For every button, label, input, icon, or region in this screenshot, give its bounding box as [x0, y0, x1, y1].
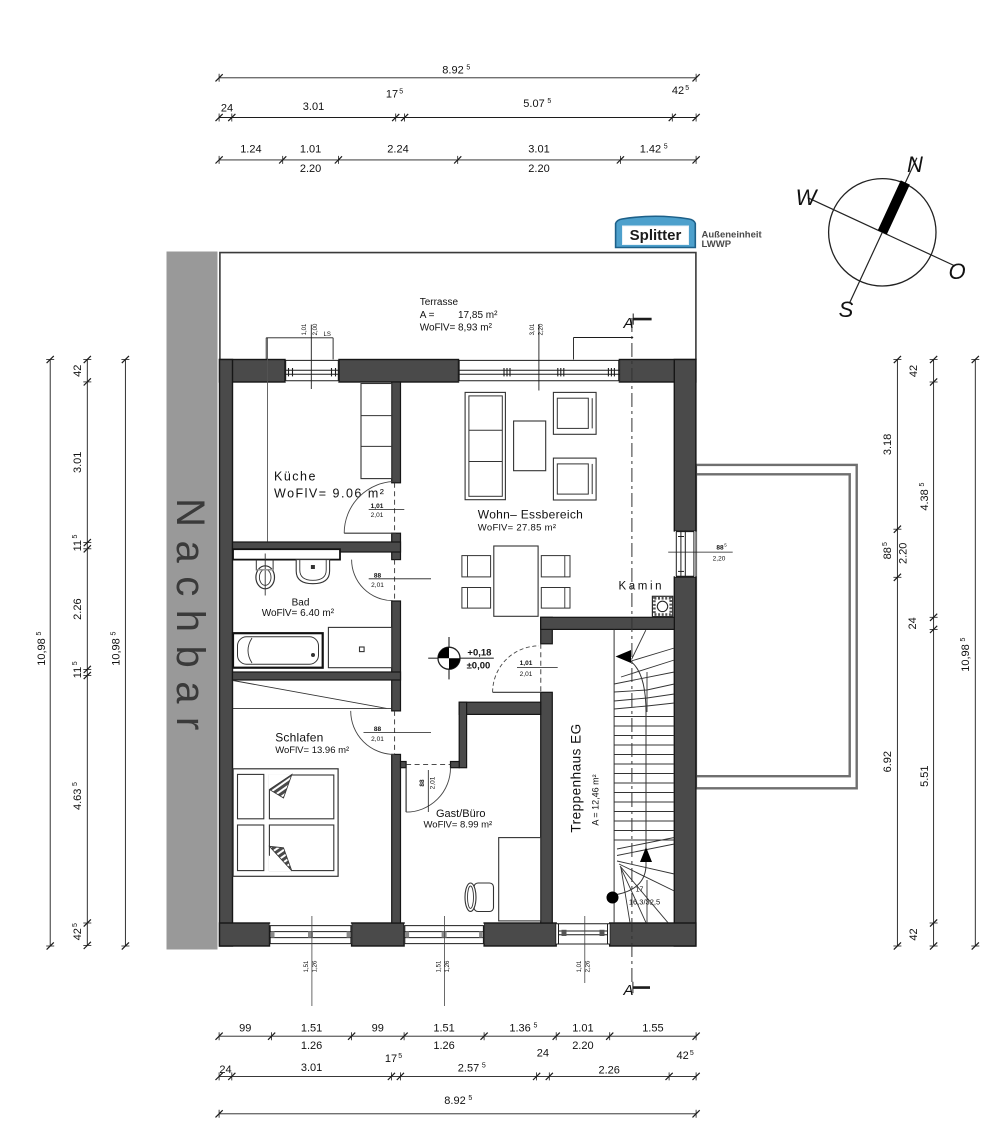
- svg-text:4.63: 4.63: [72, 789, 84, 810]
- svg-text:Treppenhaus EG: Treppenhaus EG: [569, 723, 584, 832]
- svg-text:1,26: 1,26: [313, 960, 319, 972]
- svg-text:17: 17: [385, 1053, 397, 1065]
- svg-text:1.55: 1.55: [642, 1023, 663, 1035]
- svg-text:5: 5: [533, 1023, 537, 1030]
- svg-text:2,01: 2,01: [371, 582, 384, 589]
- svg-text:1.36: 1.36: [509, 1023, 530, 1035]
- svg-text:24: 24: [221, 103, 233, 115]
- svg-text:88: 88: [374, 572, 382, 579]
- svg-text:2,01: 2,01: [371, 736, 384, 743]
- svg-text:5: 5: [919, 483, 926, 487]
- svg-text:N: N: [907, 152, 923, 177]
- svg-text:17: 17: [636, 887, 644, 894]
- svg-text:11: 11: [72, 667, 84, 678]
- svg-text:5.51: 5.51: [919, 765, 931, 786]
- svg-text:A =: A =: [420, 310, 435, 321]
- svg-text:5: 5: [72, 923, 79, 927]
- svg-text:Nachbar: Nachbar: [168, 498, 212, 744]
- svg-text:1.26: 1.26: [433, 1040, 454, 1052]
- svg-text:2.24: 2.24: [387, 144, 408, 156]
- svg-text:Gast/Büro: Gast/Büro: [436, 808, 486, 820]
- svg-text:42: 42: [908, 365, 920, 377]
- svg-text:5: 5: [882, 542, 889, 546]
- svg-text:Schlafen: Schlafen: [275, 731, 323, 745]
- svg-text:1,01: 1,01: [302, 323, 308, 335]
- svg-text:2,20: 2,20: [538, 323, 544, 335]
- svg-text:4.38: 4.38: [919, 489, 931, 510]
- svg-text:O: O: [948, 259, 965, 284]
- svg-text:10,98: 10,98: [111, 638, 123, 666]
- svg-text:1,01: 1,01: [520, 660, 533, 667]
- svg-text:5: 5: [685, 85, 689, 92]
- svg-text:2.26: 2.26: [598, 1065, 619, 1077]
- svg-text:17,85 m²: 17,85 m²: [458, 310, 498, 321]
- svg-text:A: A: [622, 315, 633, 332]
- svg-text:5: 5: [111, 632, 118, 636]
- svg-text:5: 5: [664, 144, 668, 151]
- svg-text:WoFlV= 6.40 m²: WoFlV= 6.40 m²: [262, 608, 335, 619]
- svg-text:1,01: 1,01: [371, 503, 384, 510]
- svg-text:5: 5: [399, 89, 403, 96]
- svg-text:1.01: 1.01: [572, 1023, 593, 1035]
- svg-text:2,00: 2,00: [313, 323, 319, 335]
- svg-text:88: 88: [419, 779, 426, 787]
- svg-text:1.51: 1.51: [433, 1023, 454, 1035]
- svg-text:Splitter: Splitter: [630, 227, 682, 244]
- svg-text:1.24: 1.24: [240, 144, 261, 156]
- svg-text:Terrasse: Terrasse: [420, 297, 459, 308]
- svg-text:3.01: 3.01: [301, 1062, 322, 1074]
- svg-text:Bad: Bad: [292, 598, 310, 609]
- svg-text:5: 5: [72, 534, 79, 538]
- svg-text:24: 24: [907, 617, 919, 629]
- svg-text:2,26: 2,26: [586, 960, 592, 972]
- svg-text:5: 5: [960, 638, 967, 642]
- svg-text:1.26: 1.26: [301, 1040, 322, 1052]
- svg-text:LS: LS: [324, 332, 331, 338]
- svg-text:3,01: 3,01: [530, 323, 536, 335]
- svg-text:5: 5: [468, 1095, 472, 1102]
- svg-text:88: 88: [716, 545, 724, 552]
- svg-text:WoFlV= 13.96 m²: WoFlV= 13.96 m²: [275, 745, 349, 756]
- svg-text:+0,18: +0,18: [467, 648, 491, 659]
- svg-text:11: 11: [72, 540, 84, 551]
- svg-text:5: 5: [482, 1063, 486, 1070]
- svg-text:3.01: 3.01: [72, 452, 84, 473]
- svg-text:1.01: 1.01: [300, 144, 321, 156]
- svg-text:17: 17: [386, 89, 398, 101]
- svg-text:42: 42: [72, 365, 84, 377]
- svg-text:2.20: 2.20: [572, 1040, 593, 1052]
- svg-text:6.92: 6.92: [882, 751, 894, 772]
- svg-text:2,01: 2,01: [430, 776, 437, 789]
- svg-text:2,01: 2,01: [371, 512, 384, 519]
- svg-text:88: 88: [374, 726, 382, 733]
- svg-text:A = 12,46 m²: A = 12,46 m²: [591, 774, 601, 825]
- svg-text:Wohn– Essbereich: Wohn– Essbereich: [478, 508, 583, 522]
- svg-text:42: 42: [676, 1050, 688, 1062]
- svg-text:2.20: 2.20: [528, 163, 549, 175]
- svg-text:2,01: 2,01: [520, 671, 533, 678]
- svg-text:Küche: Küche: [274, 470, 317, 484]
- svg-text:LWWP: LWWP: [702, 239, 732, 250]
- svg-text:5: 5: [466, 65, 470, 72]
- svg-text:10,98: 10,98: [960, 644, 972, 672]
- svg-text:10,98: 10,98: [36, 638, 48, 666]
- svg-text:5: 5: [72, 661, 79, 665]
- svg-text:WoFlV= 8.99 m²: WoFlV= 8.99 m²: [424, 820, 493, 831]
- svg-text:±0,00: ±0,00: [467, 660, 491, 671]
- svg-text:2,20: 2,20: [713, 556, 726, 563]
- svg-text:5: 5: [547, 98, 551, 105]
- svg-text:88: 88: [882, 547, 894, 559]
- svg-text:WoFlV=: WoFlV=: [420, 322, 456, 333]
- svg-text:42: 42: [72, 928, 84, 940]
- svg-text:1,51: 1,51: [304, 960, 310, 972]
- svg-text:Kamin: Kamin: [619, 581, 665, 593]
- svg-text:2.20: 2.20: [898, 543, 910, 564]
- svg-text:1,51: 1,51: [437, 960, 443, 972]
- svg-text:99: 99: [372, 1023, 384, 1035]
- svg-text:2.20: 2.20: [300, 163, 321, 175]
- svg-text:2.57: 2.57: [458, 1063, 479, 1075]
- svg-text:1,26: 1,26: [445, 960, 451, 972]
- svg-text:1.42: 1.42: [640, 144, 661, 156]
- svg-text:5: 5: [690, 1050, 694, 1057]
- svg-text:2.26: 2.26: [72, 598, 84, 619]
- svg-text:8.92: 8.92: [444, 1095, 465, 1107]
- svg-text:1.51: 1.51: [301, 1023, 322, 1035]
- svg-text:16,3/32,5: 16,3/32,5: [629, 898, 660, 907]
- svg-text:5: 5: [36, 632, 43, 636]
- svg-text:1,01: 1,01: [577, 960, 583, 972]
- svg-text:42: 42: [908, 928, 920, 940]
- svg-text:42: 42: [672, 85, 684, 97]
- svg-text:8,93 m²: 8,93 m²: [458, 322, 493, 333]
- svg-text:99: 99: [239, 1023, 251, 1035]
- svg-text:5: 5: [72, 782, 79, 786]
- svg-text:3.01: 3.01: [303, 101, 324, 113]
- svg-text:24: 24: [219, 1064, 231, 1076]
- svg-text:W: W: [796, 185, 819, 210]
- svg-text:3.01: 3.01: [528, 144, 549, 156]
- svg-text:5.07: 5.07: [523, 98, 544, 110]
- svg-text:WoFlV= 27.85 m²: WoFlV= 27.85 m²: [478, 523, 557, 534]
- svg-text:5: 5: [398, 1053, 402, 1060]
- svg-text:24: 24: [537, 1048, 549, 1060]
- svg-text:3.18: 3.18: [882, 434, 894, 455]
- svg-text:8.92: 8.92: [442, 65, 463, 77]
- svg-text:A: A: [622, 982, 633, 999]
- svg-text:S: S: [839, 297, 854, 322]
